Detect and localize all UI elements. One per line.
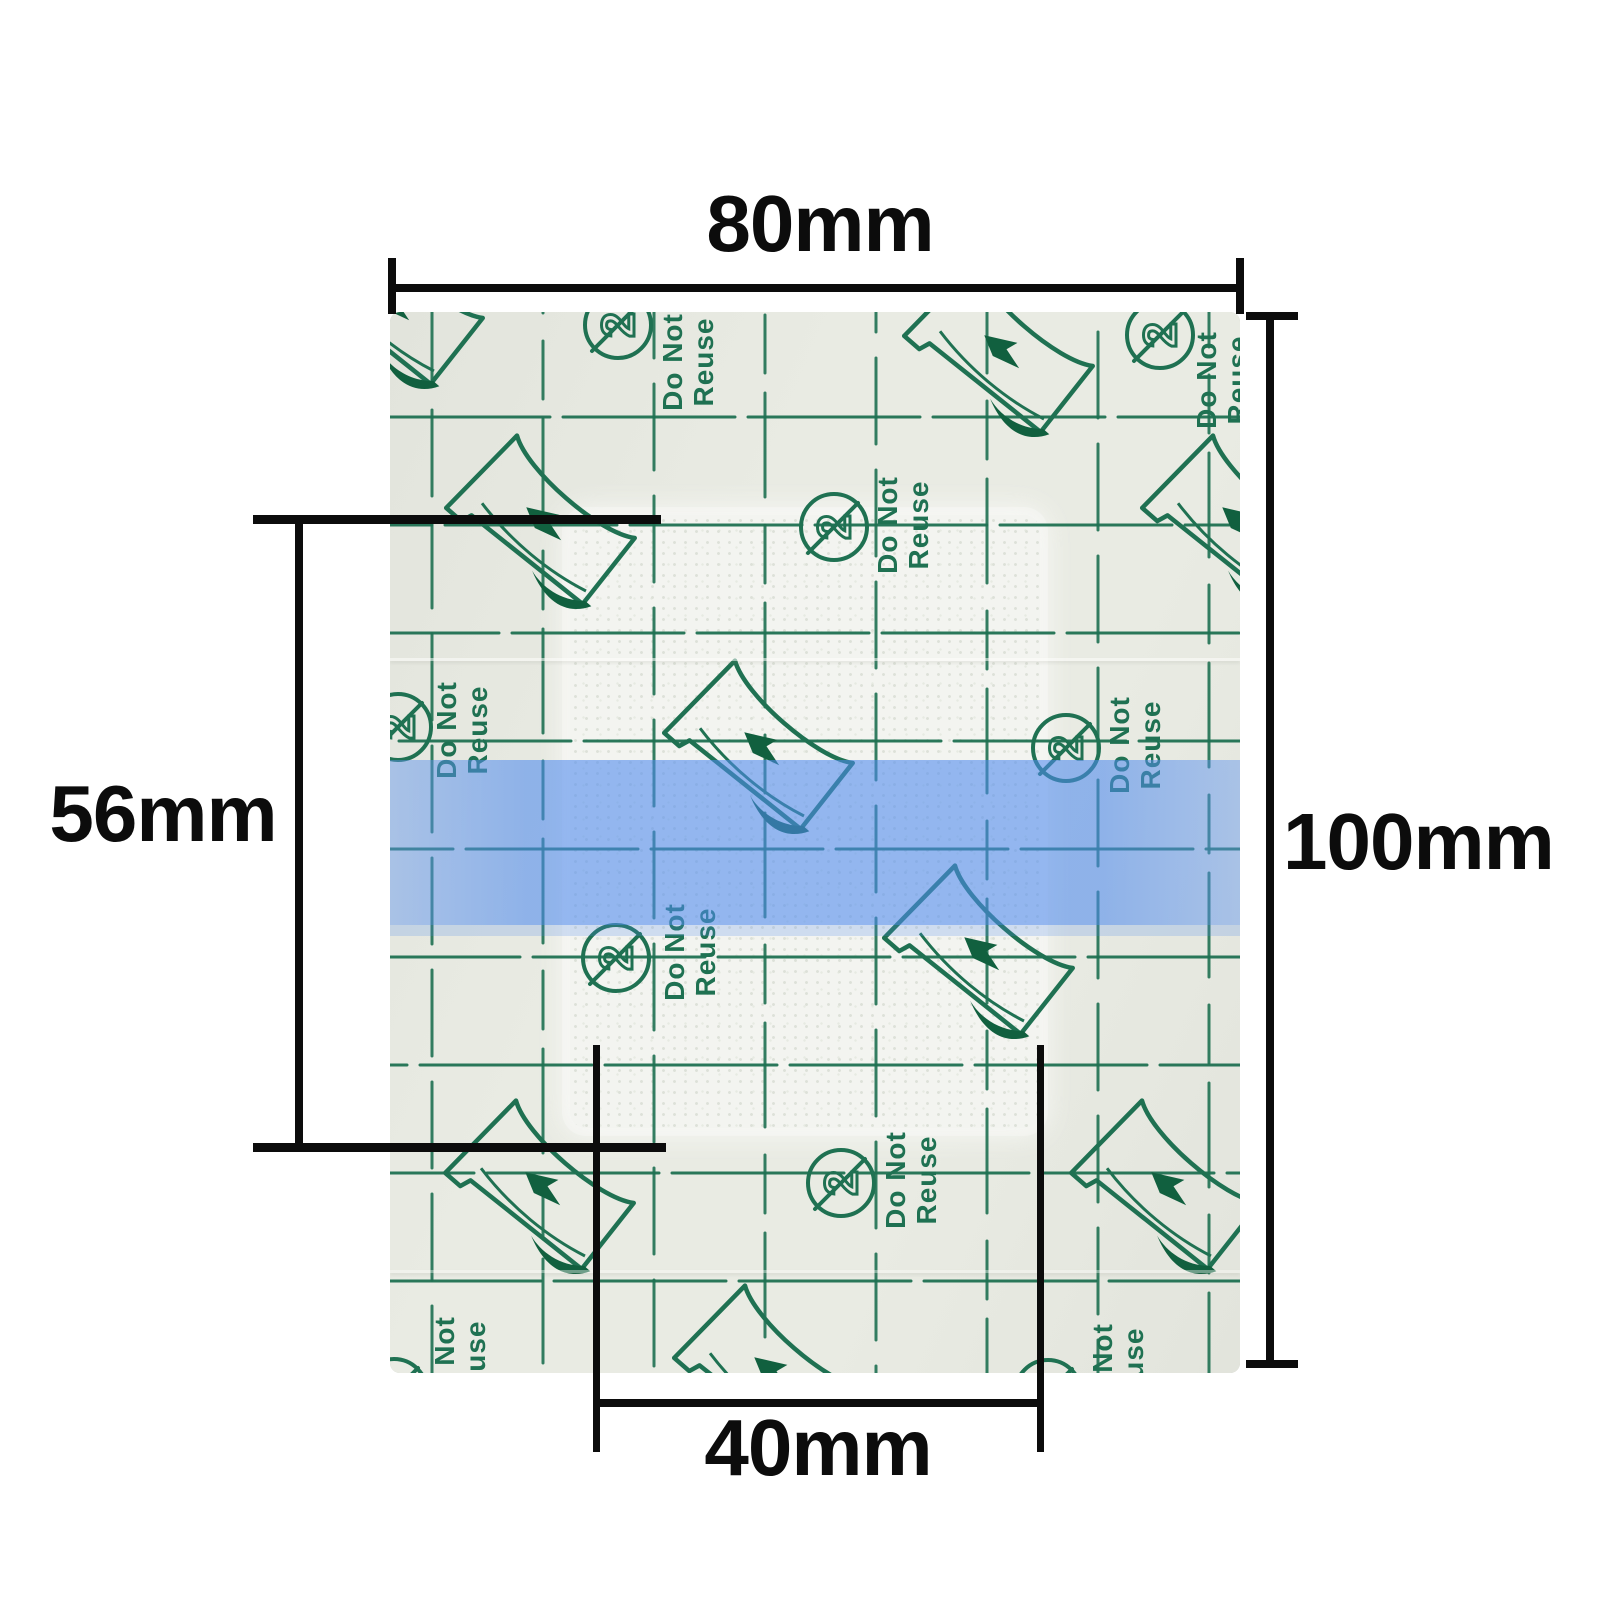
do-not-reuse-text: Do NotReuse <box>1087 1307 1149 1373</box>
pad-width-dimension-line-left <box>593 1045 600 1452</box>
do-not-reuse-icon: 2 <box>808 1150 874 1216</box>
height-dimension-label: 100mm <box>1283 800 1554 884</box>
do-not-reuse-text: Do NotReuse <box>429 1300 491 1373</box>
peel-corner-icon <box>904 312 1102 450</box>
do-not-reuse-text: Do NotReuse <box>1191 315 1240 445</box>
do-not-reuse-icon: 2 <box>585 312 651 358</box>
do-not-reuse-text: Do NotReuse <box>872 460 934 590</box>
do-not-reuse-icon: 2 <box>1015 1360 1081 1373</box>
height-dimension-tick-top <box>1246 312 1298 320</box>
height-dimension-line <box>1266 314 1274 1366</box>
width-dimension-line <box>388 284 1244 292</box>
width-dimension-tick-left <box>388 258 396 314</box>
width-dimension-label: 80mm <box>620 182 1020 266</box>
height-dimension-tick-bottom <box>1246 1360 1298 1368</box>
pad-height-dimension-tick-bottom <box>253 1143 666 1152</box>
peel-corner-icon <box>1142 432 1240 622</box>
dressing-product: 222222222 Do NotReuseDo NotReuseDo NotRe… <box>390 312 1240 1373</box>
do-not-reuse-icon: 2 <box>1127 312 1193 368</box>
peel-corner-icon <box>446 432 644 622</box>
blue-strip-fringe <box>390 925 1240 936</box>
peel-corner-icon <box>390 312 492 402</box>
blue-removal-strip <box>390 760 1240 925</box>
do-not-reuse-icon: 2 <box>390 694 431 760</box>
do-not-reuse-text: Do NotReuse <box>657 312 719 427</box>
film-crease-line <box>390 1270 1240 1273</box>
film-crease-line <box>390 658 1240 661</box>
do-not-reuse-text: Do NotReuse <box>880 1115 942 1245</box>
pad-width-dimension-label: 40mm <box>618 1406 1018 1490</box>
product-photo-stage: 222222222 Do NotReuseDo NotReuseDo NotRe… <box>0 0 1600 1600</box>
do-not-reuse-icon: 2 <box>801 494 867 560</box>
pad-width-dimension-line-right <box>1037 1045 1044 1452</box>
peel-corner-icon <box>674 1282 872 1373</box>
pad-height-dimension-tick-top <box>253 515 661 524</box>
pad-height-dimension-label: 56mm <box>0 772 326 856</box>
do-not-reuse-icon: 2 <box>390 1359 427 1373</box>
width-dimension-tick-right <box>1236 258 1244 314</box>
